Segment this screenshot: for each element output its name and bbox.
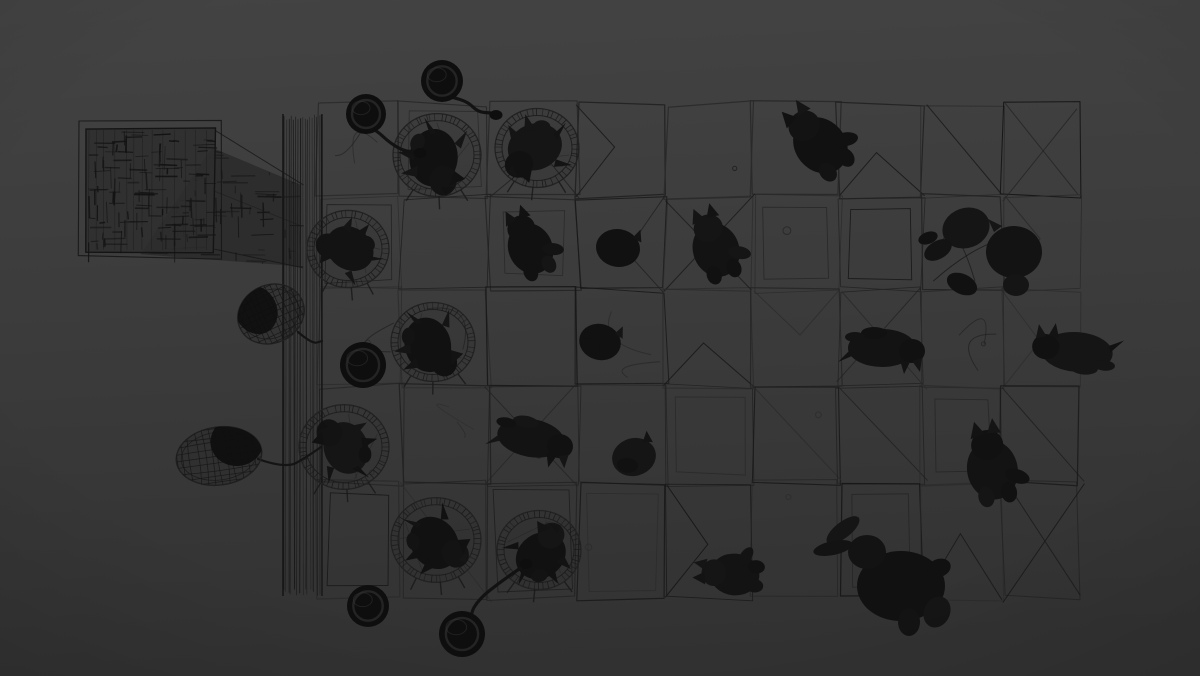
scene-canvas: [0, 0, 1200, 676]
wireframe-viewport: [0, 0, 1200, 676]
